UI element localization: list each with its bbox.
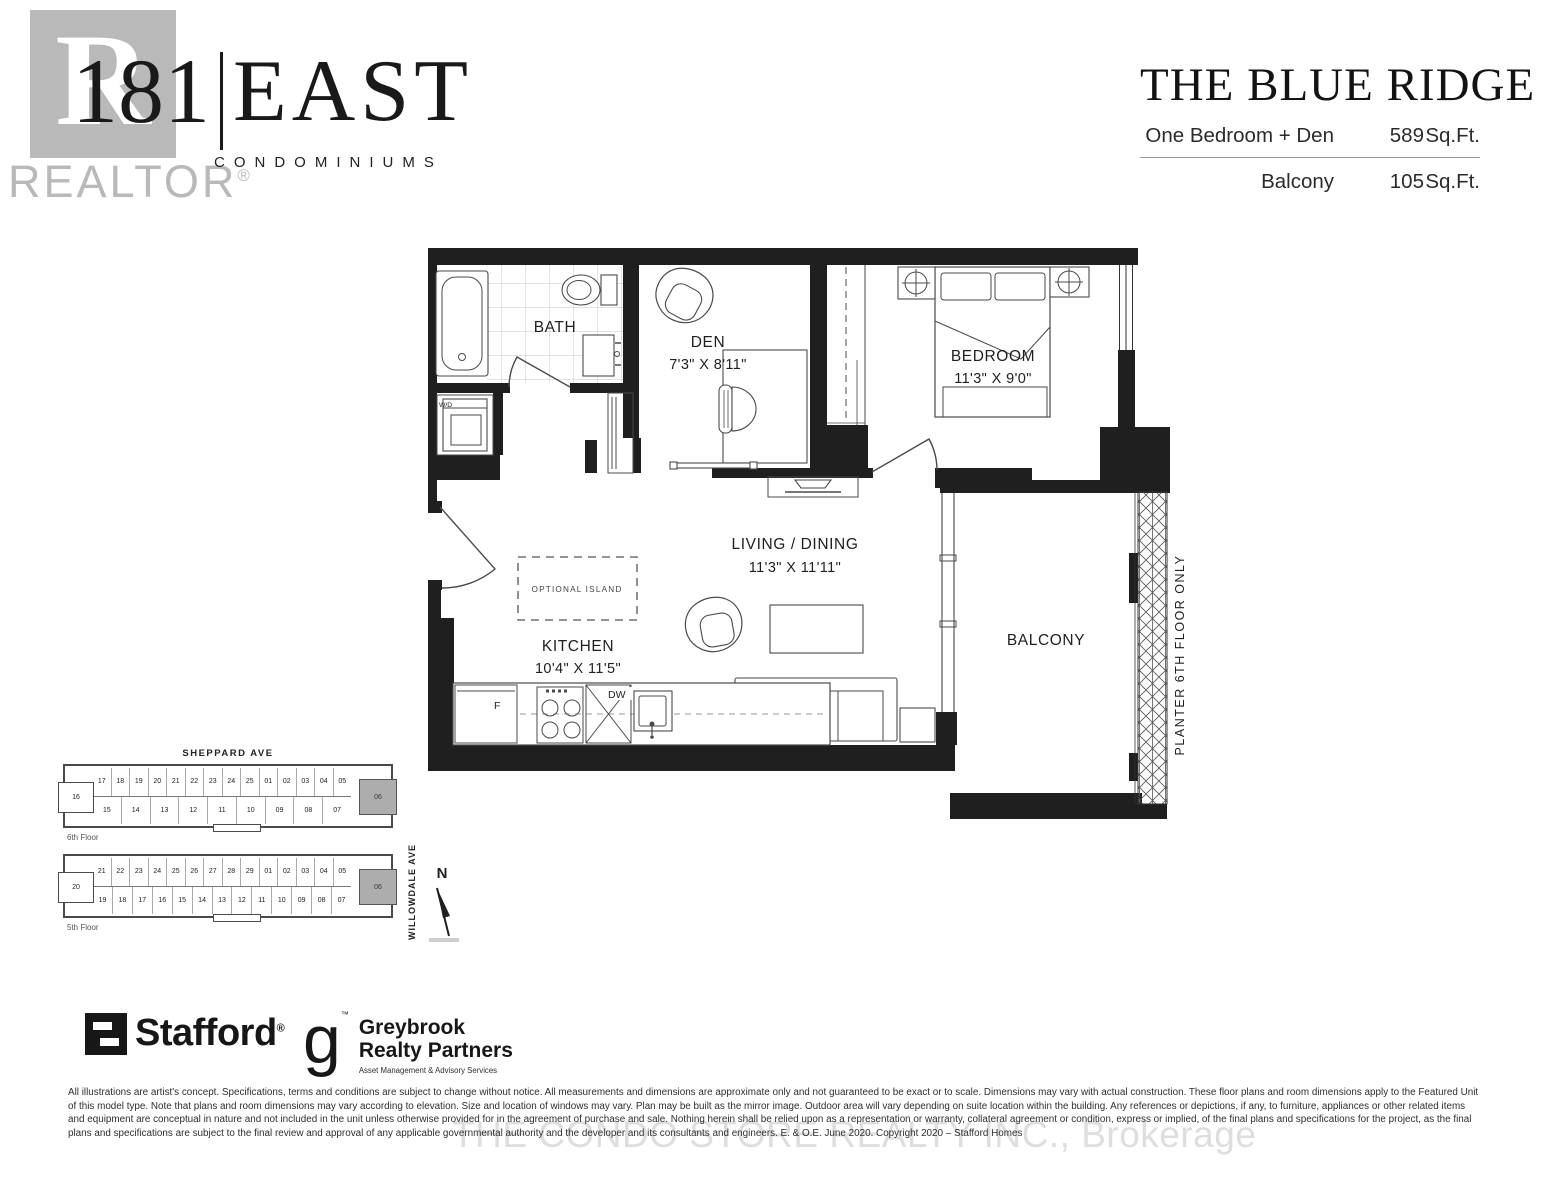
keyplan-top-row: 2122232425262728290102030405 bbox=[93, 858, 351, 887]
keyplan-unit: 03 bbox=[296, 858, 315, 886]
keyplan-unit: 17 bbox=[132, 887, 152, 915]
greybrook-tagline: Asset Management & Advisory Services bbox=[359, 1066, 513, 1075]
living-label: LIVING / DINING bbox=[732, 536, 859, 553]
spec-value: 589 bbox=[1334, 124, 1424, 148]
planter-label: PLANTER 6TH FLOOR ONLY bbox=[1173, 555, 1187, 756]
tv-icon bbox=[768, 477, 858, 497]
spec-unit: Sq.Ft. bbox=[1424, 124, 1480, 148]
greybrook-tm: ™ bbox=[341, 1010, 349, 1019]
logo-name: EAST bbox=[233, 48, 473, 136]
logo-number: 181 bbox=[72, 48, 210, 135]
street-label-sheppard: SHEPPARD AVE bbox=[63, 748, 393, 759]
den-dims: 7'3" X 8'11" bbox=[669, 357, 747, 373]
keyplan-unit: 08 bbox=[293, 797, 322, 825]
keyplan-unit: 21 bbox=[166, 768, 185, 796]
keyplan-unit: 29 bbox=[240, 858, 259, 886]
keyplan-unit: 25 bbox=[166, 858, 185, 886]
living-dims: 11'3" X 11'11" bbox=[749, 560, 841, 576]
spec-row-unit: One Bedroom + Den 589 Sq.Ft. bbox=[1140, 124, 1480, 148]
keyplan-left-unit: 20 bbox=[58, 872, 94, 903]
keyplan-unit: 07 bbox=[322, 797, 351, 825]
logo-divider bbox=[220, 52, 223, 150]
keyplan-unit: 23 bbox=[129, 858, 148, 886]
keyplan-unit: 19 bbox=[93, 887, 112, 915]
fridge-label: F bbox=[494, 700, 500, 712]
entry-door bbox=[440, 507, 495, 588]
keyplan-unit: 27 bbox=[203, 858, 222, 886]
nightstand-lamp-icon bbox=[1050, 267, 1089, 297]
keyplan-top-row: 1718192021222324250102030405 bbox=[93, 768, 351, 797]
keyplan-unit: 19 bbox=[129, 768, 148, 796]
balcony-sliding-door bbox=[940, 493, 956, 712]
keyplan-section: SHEPPARD AVE 171819202122232425010203040… bbox=[63, 748, 533, 944]
keyplan-unit: 14 bbox=[192, 887, 212, 915]
den-shelf bbox=[670, 462, 757, 469]
north-arrow-icon: N bbox=[425, 860, 465, 946]
keyplan-unit: 15 bbox=[93, 797, 121, 825]
north-label: N bbox=[437, 865, 448, 882]
bedroom-dims: 11'3" X 9'0" bbox=[954, 371, 1032, 387]
keyplan-unit: 13 bbox=[150, 797, 179, 825]
greybrook-logo: g™ Greybrook Realty Partners Asset Manag… bbox=[303, 1012, 513, 1075]
bedroom-closet bbox=[827, 265, 865, 425]
keyplan-bottom-row: 151413121110090807 bbox=[93, 797, 351, 825]
stafford-reg: ® bbox=[277, 1022, 285, 1034]
keyplan-6th-floor: 1718192021222324250102030405 15141312111… bbox=[63, 764, 393, 828]
keyplan-left-unit: 16 bbox=[58, 782, 94, 813]
keyplan-unit: 22 bbox=[185, 768, 204, 796]
keyplan-unit: 14 bbox=[121, 797, 150, 825]
keyplan-unit: 24 bbox=[222, 768, 241, 796]
wd-label: W/D bbox=[439, 402, 452, 409]
keyplan-unit: 21 bbox=[93, 858, 111, 886]
keyplan-unit: 05 bbox=[333, 858, 352, 886]
bath-label: BATH bbox=[534, 319, 577, 336]
bedroom-door bbox=[872, 439, 937, 472]
keyplan-highlight-unit: 06 bbox=[359, 869, 397, 905]
keyplan-unit: 16 bbox=[152, 887, 172, 915]
den-label: DEN bbox=[691, 334, 726, 351]
keyplan-unit: 12 bbox=[231, 887, 251, 915]
kitchen-dims: 10'4" X 11'5" bbox=[535, 661, 621, 677]
floorplan-flyer: R REALTOR® 181 EAST CONDOMINIUMS THE BLU… bbox=[0, 0, 1553, 1200]
keyplan-unit: 18 bbox=[111, 768, 130, 796]
spec-value: 105 bbox=[1334, 170, 1424, 194]
nightstand-lamp-icon bbox=[898, 267, 935, 299]
keyplan-unit: 17 bbox=[93, 768, 111, 796]
keyplan-core-bump bbox=[213, 824, 261, 832]
keyplan-unit: 20 bbox=[148, 768, 167, 796]
logo-subtitle: CONDOMINIUMS bbox=[214, 154, 443, 171]
keyplan-unit: 04 bbox=[314, 858, 333, 886]
stafford-icon bbox=[85, 1013, 127, 1055]
keyplan-unit: 18 bbox=[112, 887, 132, 915]
bathtub-icon bbox=[436, 271, 488, 376]
living-chair-icon bbox=[681, 593, 746, 656]
spec-row-balcony: Balcony 105 Sq.Ft. bbox=[1140, 170, 1480, 194]
floorplan-drawing: BATH W/D DEN 7'3" X 8'11" BEDROOM 11'3" … bbox=[405, 235, 1205, 835]
spec-label: One Bedroom + Den bbox=[1140, 124, 1334, 148]
keyplan-unit: 07 bbox=[331, 887, 351, 915]
realtor-label: REALTOR bbox=[8, 156, 237, 207]
keyplan-unit: 22 bbox=[111, 858, 130, 886]
keyplan-unit: 12 bbox=[178, 797, 207, 825]
coffee-table-icon bbox=[770, 605, 863, 653]
keyplan-unit: 02 bbox=[277, 858, 296, 886]
keyplan-unit: 09 bbox=[291, 887, 311, 915]
dishwasher-label: DW bbox=[608, 689, 626, 701]
disclaimer-text: All illustrations are artist's concept. … bbox=[68, 1086, 1484, 1140]
keyplan-unit: 11 bbox=[207, 797, 236, 825]
stafford-logo: Stafford® bbox=[85, 1012, 284, 1055]
keyplan-unit: 15 bbox=[172, 887, 192, 915]
keyplan-unit: 24 bbox=[148, 858, 167, 886]
keyplan-5th-floor: 2122232425262728290102030405 19181716151… bbox=[63, 854, 393, 918]
stafford-wordmark: Stafford® bbox=[135, 1012, 284, 1055]
bedroom-label: BEDROOM bbox=[951, 348, 1035, 365]
keyplan-unit: 05 bbox=[333, 768, 352, 796]
floor-label-6: 6th Floor bbox=[67, 833, 533, 842]
spec-divider bbox=[1140, 157, 1480, 158]
greybrook-initial: g bbox=[303, 1002, 341, 1078]
keyplan-unit: 09 bbox=[265, 797, 294, 825]
planter-strip bbox=[1135, 492, 1167, 804]
island-label: OPTIONAL ISLAND bbox=[532, 585, 623, 594]
stafford-name: Stafford bbox=[135, 1012, 277, 1054]
keyplan-unit: 10 bbox=[236, 797, 265, 825]
street-label-willowdale: WILLOWDALE AVE bbox=[407, 844, 417, 940]
greybrook-name-line1: Greybrook bbox=[359, 1017, 513, 1040]
spec-label: Balcony bbox=[1140, 170, 1334, 194]
keyplan-unit: 01 bbox=[259, 858, 278, 886]
keyplan-bottom-row: 19181716151413121110090807 bbox=[93, 887, 351, 915]
keyplan-core-bump bbox=[213, 914, 261, 922]
toilet-icon bbox=[562, 275, 617, 305]
greybrook-name-line2: Realty Partners bbox=[359, 1040, 513, 1063]
keyplan-unit: 23 bbox=[203, 768, 222, 796]
keyplan-unit: 01 bbox=[259, 768, 278, 796]
keyplan-unit: 11 bbox=[251, 887, 271, 915]
keyplan-unit: 26 bbox=[185, 858, 204, 886]
keyplan-unit: 02 bbox=[277, 768, 296, 796]
bedroom-window bbox=[1118, 265, 1135, 350]
keyplan-unit: 04 bbox=[314, 768, 333, 796]
keyplan-unit: 25 bbox=[240, 768, 259, 796]
keyplan-highlight-unit: 06 bbox=[359, 779, 397, 815]
spec-unit: Sq.Ft. bbox=[1424, 170, 1480, 194]
balcony-label: BALCONY bbox=[1007, 632, 1085, 649]
bed-icon bbox=[935, 267, 1050, 417]
plan-name: THE BLUE RIDGE bbox=[1140, 58, 1480, 112]
building-logo: 181 EAST CONDOMINIUMS bbox=[72, 48, 473, 150]
keyplan-unit: 10 bbox=[271, 887, 291, 915]
greybrook-g-icon: g™ bbox=[303, 1012, 349, 1075]
keyplan-unit: 28 bbox=[222, 858, 241, 886]
kitchen-label: KITCHEN bbox=[542, 638, 614, 655]
side-table-icon bbox=[900, 708, 935, 742]
keyplan-unit: 03 bbox=[296, 768, 315, 796]
keyplan-unit: 13 bbox=[212, 887, 232, 915]
den-chair-icon bbox=[646, 258, 721, 332]
keyplan-unit: 08 bbox=[311, 887, 331, 915]
title-block: THE BLUE RIDGE One Bedroom + Den 589 Sq.… bbox=[1140, 58, 1480, 194]
